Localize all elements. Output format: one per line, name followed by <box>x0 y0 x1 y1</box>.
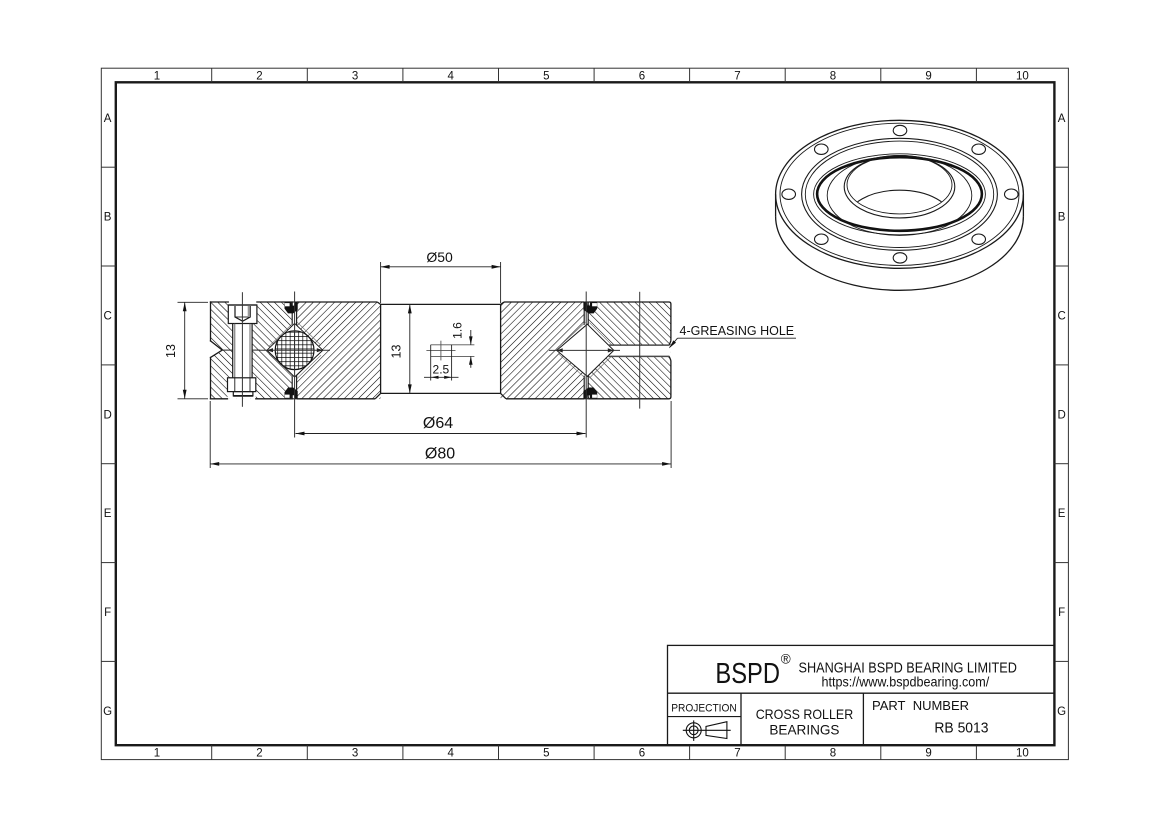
svg-text:E: E <box>104 508 112 520</box>
svg-text:10: 10 <box>1016 70 1029 82</box>
svg-text:13: 13 <box>164 344 178 358</box>
svg-text:8: 8 <box>830 747 836 759</box>
svg-text:2: 2 <box>256 747 262 759</box>
svg-text:RB 5013: RB 5013 <box>934 719 988 736</box>
svg-text:3: 3 <box>352 70 358 82</box>
svg-text:A: A <box>104 113 112 125</box>
svg-text:7: 7 <box>734 747 740 759</box>
svg-text:BEARINGS: BEARINGS <box>769 721 839 737</box>
svg-text:C: C <box>1057 311 1065 323</box>
svg-text:6: 6 <box>639 747 645 759</box>
svg-text:2.5: 2.5 <box>433 363 450 377</box>
svg-text:5: 5 <box>543 747 549 759</box>
svg-text:B: B <box>1058 212 1066 224</box>
svg-text:PART NUMBER: PART NUMBER <box>872 698 969 713</box>
svg-text:5: 5 <box>543 70 549 82</box>
svg-text:®: ® <box>781 652 791 667</box>
svg-text:Ø50: Ø50 <box>426 249 453 265</box>
svg-text:1: 1 <box>154 70 160 82</box>
svg-text:CROSS ROLLER: CROSS ROLLER <box>756 706 854 722</box>
svg-text:F: F <box>1058 607 1065 619</box>
svg-text:D: D <box>103 409 111 421</box>
svg-text:3: 3 <box>352 747 358 759</box>
svg-text:1.6: 1.6 <box>451 322 465 339</box>
svg-text:10: 10 <box>1016 747 1029 759</box>
svg-text:1: 1 <box>154 747 160 759</box>
svg-text:9: 9 <box>925 70 931 82</box>
svg-text:9: 9 <box>925 747 931 759</box>
svg-text:6: 6 <box>639 70 645 82</box>
svg-text:Ø64: Ø64 <box>423 415 453 432</box>
svg-text:7: 7 <box>734 70 740 82</box>
svg-text:4: 4 <box>447 747 454 759</box>
svg-text:13: 13 <box>390 345 404 359</box>
svg-text:4-GREASING HOLE: 4-GREASING HOLE <box>680 324 795 338</box>
svg-text:Ø80: Ø80 <box>425 445 455 462</box>
svg-text:A: A <box>1058 113 1066 125</box>
svg-text:8: 8 <box>830 70 836 82</box>
svg-text:2: 2 <box>256 70 262 82</box>
svg-text:G: G <box>103 706 112 718</box>
svg-text:E: E <box>1058 508 1066 520</box>
svg-text:G: G <box>1057 706 1066 718</box>
svg-text:4: 4 <box>447 70 454 82</box>
svg-text:https://www.bspdbearing.com/: https://www.bspdbearing.com/ <box>822 673 990 689</box>
svg-text:BSPD: BSPD <box>715 658 780 690</box>
svg-text:PROJECTION: PROJECTION <box>671 703 737 715</box>
svg-text:B: B <box>104 212 112 224</box>
svg-text:D: D <box>1057 409 1065 421</box>
svg-text:F: F <box>104 607 111 619</box>
svg-text:C: C <box>103 311 111 323</box>
